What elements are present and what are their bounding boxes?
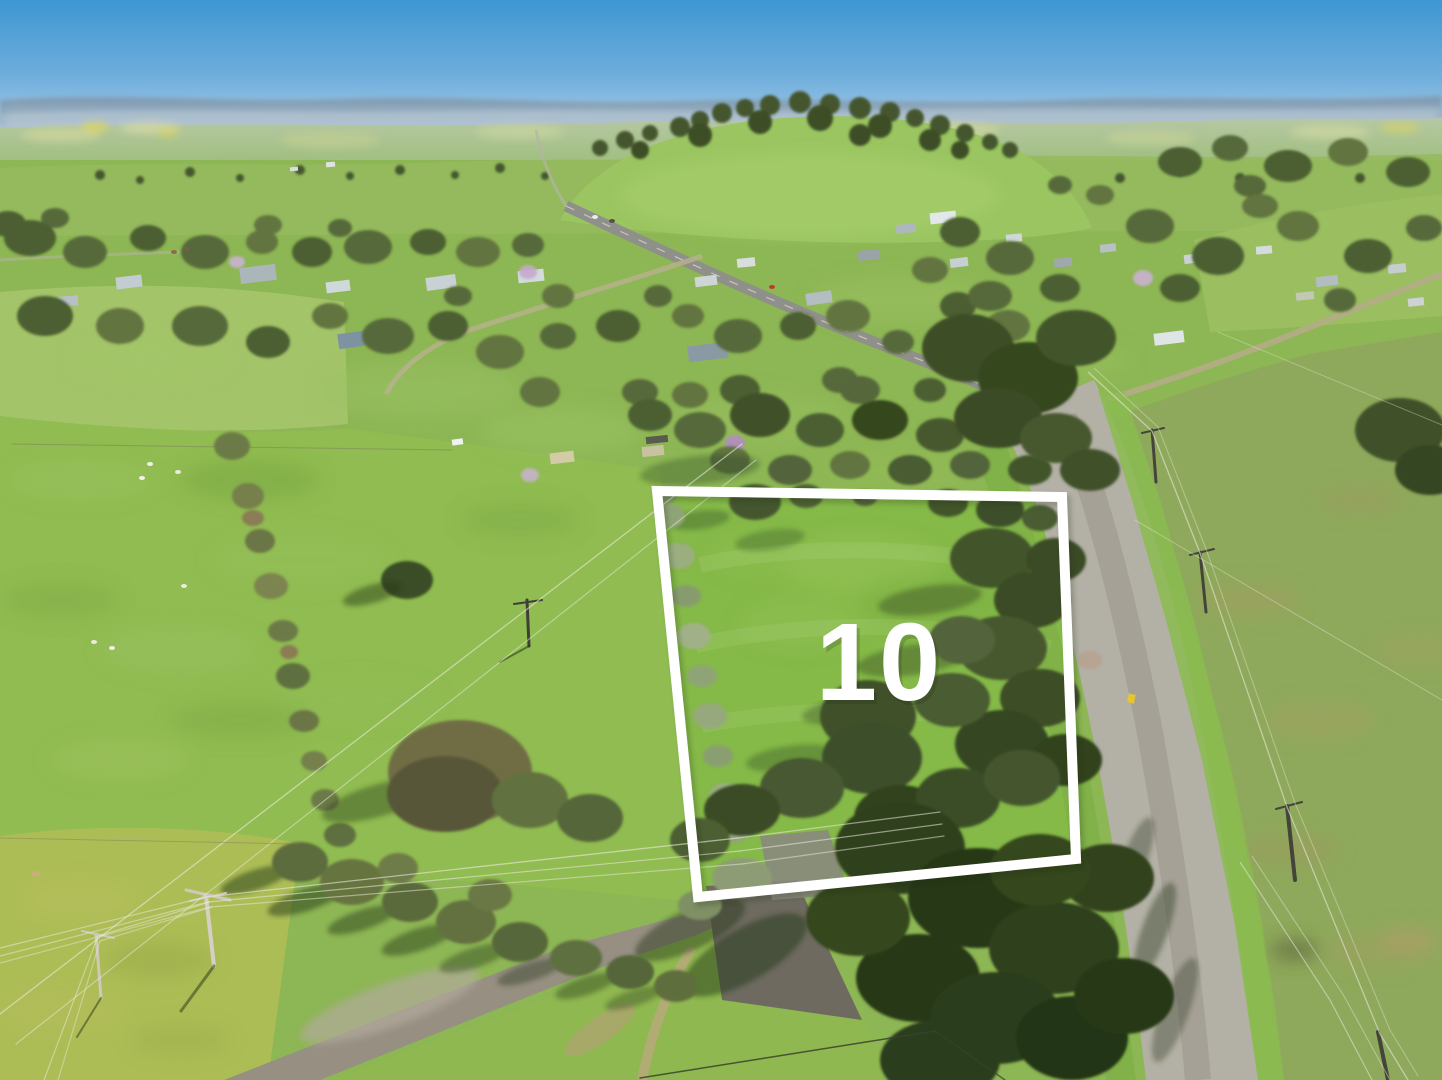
tree-canopy: [840, 376, 880, 404]
tree-canopy: [540, 323, 576, 349]
distant-tree: [670, 117, 690, 137]
tree-canopy: [17, 296, 73, 336]
tree-canopy: [950, 451, 990, 479]
lot-number-label: 10: [816, 601, 942, 724]
livestock-dot: [139, 476, 145, 480]
tree-canopy: [320, 859, 384, 905]
tree-canopy: [780, 312, 816, 340]
tree-canopy: [324, 823, 356, 847]
tree-canopy: [1406, 215, 1442, 241]
distant-tree: [906, 109, 924, 127]
livestock-dot: [769, 285, 775, 289]
tree-canopy: [268, 620, 298, 642]
grass-mottle: [480, 406, 640, 454]
building-roof: [1388, 263, 1407, 274]
tree-canopy: [1264, 150, 1312, 182]
tree-canopy: [1048, 176, 1072, 194]
grass-mottle: [20, 880, 140, 920]
tree-canopy: [1086, 185, 1114, 205]
tree-canopy: [301, 751, 327, 771]
distant-tree: [1002, 142, 1018, 158]
tree-canopy: [1277, 211, 1319, 241]
grass-mottle: [320, 362, 520, 418]
tree-canopy: [382, 882, 438, 922]
tree-canopy: [242, 510, 264, 526]
distant-tree: [592, 140, 608, 156]
tree-canopy: [232, 483, 264, 509]
grass-mottle: [0, 582, 120, 618]
tree-canopy: [1158, 147, 1202, 177]
tree-canopy: [280, 645, 298, 659]
tree-canopy: [328, 219, 352, 237]
tree-canopy: [968, 281, 1012, 311]
building-roof: [1256, 245, 1273, 254]
distant-tree: [748, 110, 772, 134]
distant-tree: [642, 125, 658, 141]
tree-canopy: [428, 311, 468, 341]
tree-canopy: [410, 229, 446, 255]
tree-canopy: [254, 215, 282, 235]
tree-canopy: [1060, 449, 1120, 491]
grass-mottle: [130, 1024, 230, 1056]
distant-field-patch: [81, 122, 109, 132]
distant-tree: [616, 131, 634, 149]
livestock-dot: [109, 646, 115, 650]
livestock-dot: [592, 215, 598, 219]
tree-canopy: [644, 285, 672, 307]
grass-mottle: [1380, 928, 1440, 952]
tree-canopy: [1078, 651, 1102, 669]
tree-canopy: [456, 237, 500, 267]
tree-canopy: [1386, 157, 1430, 187]
livestock-dot: [91, 640, 97, 644]
tree-canopy: [246, 326, 290, 358]
distant-tree: [789, 91, 811, 113]
tree-canopy: [492, 772, 568, 828]
tree-canopy: [596, 310, 640, 342]
grass-mottle: [170, 700, 310, 740]
aerial-property-photo: 10 10: [0, 0, 1442, 1080]
tree-canopy: [1074, 958, 1174, 1034]
tree-canopy: [606, 955, 654, 989]
livestock-dot: [609, 219, 615, 223]
tree-canopy: [687, 665, 717, 687]
distant-tree: [688, 123, 712, 147]
distant-field-patch: [1380, 123, 1420, 133]
tree-canopy: [1328, 138, 1368, 166]
tree-canopy: [1126, 209, 1174, 243]
tree-canopy: [628, 399, 672, 431]
livestock-dot: [184, 247, 190, 251]
tree-canopy: [940, 217, 980, 247]
tree-canopy: [272, 842, 328, 882]
tree-canopy: [984, 750, 1060, 806]
grass-mottle: [1200, 584, 1300, 616]
tree-canopy: [693, 703, 727, 729]
distant-field-patch: [158, 129, 178, 137]
building-roof: [290, 167, 298, 172]
tree-canopy: [444, 286, 472, 306]
tree-canopy: [826, 300, 870, 332]
tree-canopy: [1212, 135, 1248, 161]
grass-mottle: [460, 502, 580, 538]
grass-mottle: [1270, 940, 1320, 960]
distant-tree: [951, 141, 969, 159]
tree-canopy: [730, 393, 790, 437]
distant-tree: [236, 174, 244, 182]
tree-canopy: [1324, 288, 1356, 312]
livestock-dot: [181, 584, 187, 588]
tree-canopy: [362, 318, 414, 354]
tree-canopy: [1026, 538, 1086, 582]
distant-field-patch: [475, 125, 565, 139]
tree-canopy: [519, 265, 537, 279]
tree-canopy: [214, 432, 250, 460]
tree-canopy: [1160, 274, 1200, 302]
distant-field-patch: [1290, 125, 1370, 139]
tree-canopy: [387, 756, 503, 832]
livestock-dot: [175, 470, 181, 474]
distant-tree: [1115, 173, 1125, 183]
livestock-dot: [31, 871, 41, 877]
tree-canopy: [254, 573, 288, 599]
grass-mottle: [1265, 702, 1375, 738]
tree-canopy: [796, 413, 844, 447]
tree-canopy: [1133, 270, 1153, 286]
tree-canopy: [1022, 505, 1058, 531]
tree-canopy: [714, 319, 762, 353]
tree-canopy: [557, 794, 623, 842]
distant-tree: [185, 167, 195, 177]
tree-canopy: [703, 745, 733, 767]
tree-canopy: [914, 378, 946, 402]
distant-tree: [982, 134, 998, 150]
tree-canopy: [852, 400, 908, 440]
distant-tree: [807, 105, 833, 131]
building-roof: [737, 257, 756, 268]
distant-tree: [849, 97, 871, 119]
tree-canopy: [245, 529, 275, 553]
tree-canopy: [130, 225, 166, 251]
distant-tree: [1355, 173, 1365, 183]
distant-tree: [868, 114, 892, 138]
tree-canopy: [292, 237, 332, 267]
building-roof: [1408, 297, 1425, 307]
distant-tree: [451, 171, 459, 179]
tree-canopy: [229, 256, 245, 268]
tree-canopy: [1234, 175, 1266, 197]
grass-mottle: [100, 626, 260, 674]
tree-canopy: [172, 306, 228, 346]
tree-canopy: [181, 235, 229, 269]
tree-canopy: [1036, 310, 1116, 366]
tree-canopy: [96, 308, 144, 344]
tree-canopy: [1192, 237, 1244, 275]
distant-tree: [956, 124, 974, 142]
distant-tree: [495, 163, 505, 173]
building-roof: [1100, 243, 1117, 253]
tree-canopy: [830, 451, 870, 479]
grass-mottle: [1320, 487, 1400, 513]
distant-field-patch: [1105, 131, 1195, 145]
scene-canvas: 10 10: [0, 0, 1442, 1080]
tree-canopy: [378, 853, 418, 883]
building-roof: [326, 162, 335, 168]
distant-tree: [95, 170, 105, 180]
distant-tree: [136, 176, 144, 184]
livestock-dot: [171, 250, 177, 254]
tree-canopy: [276, 663, 310, 689]
tree-canopy: [768, 455, 812, 485]
distant-tree: [346, 172, 354, 180]
grass-mottle: [10, 460, 150, 500]
tree-canopy: [672, 304, 704, 328]
tree-canopy: [512, 233, 544, 257]
distant-field-patch: [280, 132, 380, 148]
tree-canopy: [882, 330, 914, 354]
tree-canopy: [542, 284, 574, 308]
grass-mottle: [210, 534, 390, 586]
tree-canopy: [344, 230, 392, 264]
distant-tree: [631, 141, 649, 159]
tree-canopy: [672, 382, 708, 408]
tree-canopy: [476, 335, 524, 369]
tree-canopy: [4, 220, 56, 256]
tree-canopy: [289, 710, 319, 732]
tree-canopy: [674, 412, 726, 448]
distant-tree: [712, 103, 732, 123]
distant-tree: [919, 129, 941, 151]
grass-mottle: [50, 738, 190, 782]
tree-canopy: [550, 940, 602, 976]
tree-canopy: [677, 623, 711, 649]
distant-tree: [849, 124, 871, 146]
distant-tree: [395, 165, 405, 175]
tree-canopy: [1242, 194, 1278, 218]
tree-canopy: [312, 303, 348, 329]
tree-canopy: [986, 241, 1034, 275]
tree-canopy: [888, 455, 932, 485]
tree-canopy: [1344, 239, 1392, 273]
tree-canopy: [492, 922, 548, 962]
tree-canopy: [63, 236, 107, 268]
tree-canopy: [520, 377, 560, 407]
tree-canopy: [912, 257, 948, 283]
tree-canopy: [654, 970, 698, 1002]
tree-canopy: [521, 468, 539, 482]
tree-canopy: [1040, 274, 1080, 302]
livestock-dot: [147, 462, 153, 466]
